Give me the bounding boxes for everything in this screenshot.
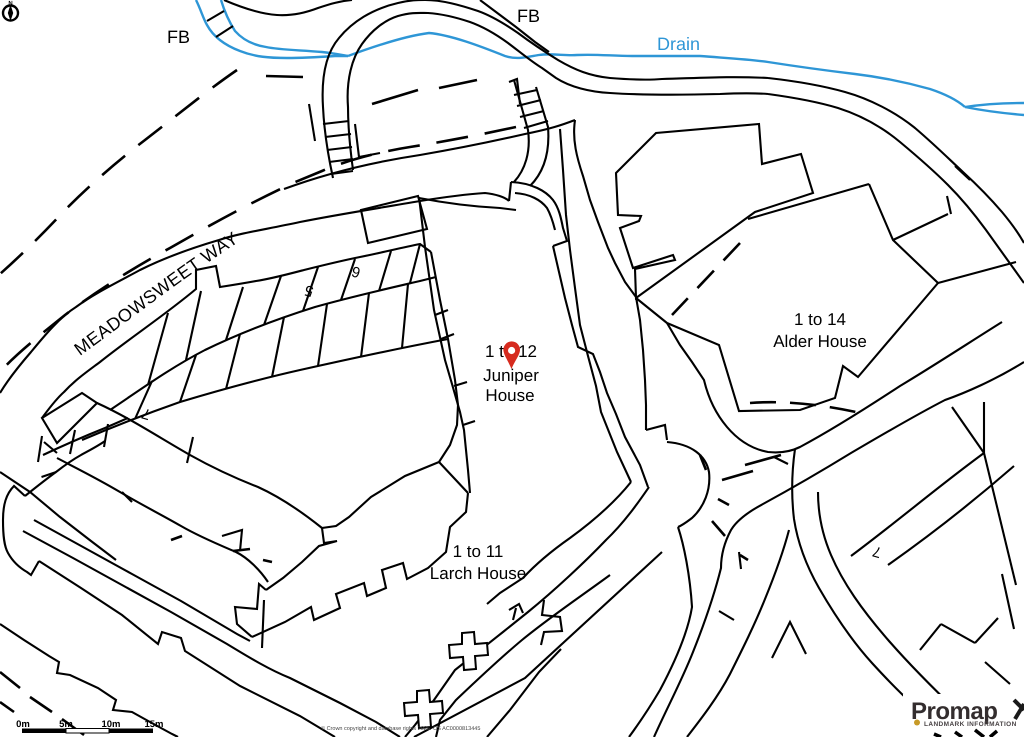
svg-text:FB: FB [517,6,540,26]
svg-text:House: House [485,386,534,405]
svg-text:N: N [8,0,12,7]
svg-text:1 to 14: 1 to 14 [794,310,846,329]
svg-text:FB: FB [167,27,190,47]
svg-text:1 to 11: 1 to 11 [453,542,504,561]
svg-text:Larch House: Larch House [430,564,526,583]
svg-text:© Crown copyright and database: © Crown copyright and database rights 20… [321,726,480,732]
svg-text:0m: 0m [16,719,30,730]
svg-text:Alder House: Alder House [773,332,867,351]
svg-text:Drain: Drain [657,34,700,54]
svg-text:15m: 15m [144,719,163,730]
svg-text:Juniper: Juniper [483,366,539,385]
svg-text:LANDMARK INFORMATION: LANDMARK INFORMATION [924,721,1017,728]
